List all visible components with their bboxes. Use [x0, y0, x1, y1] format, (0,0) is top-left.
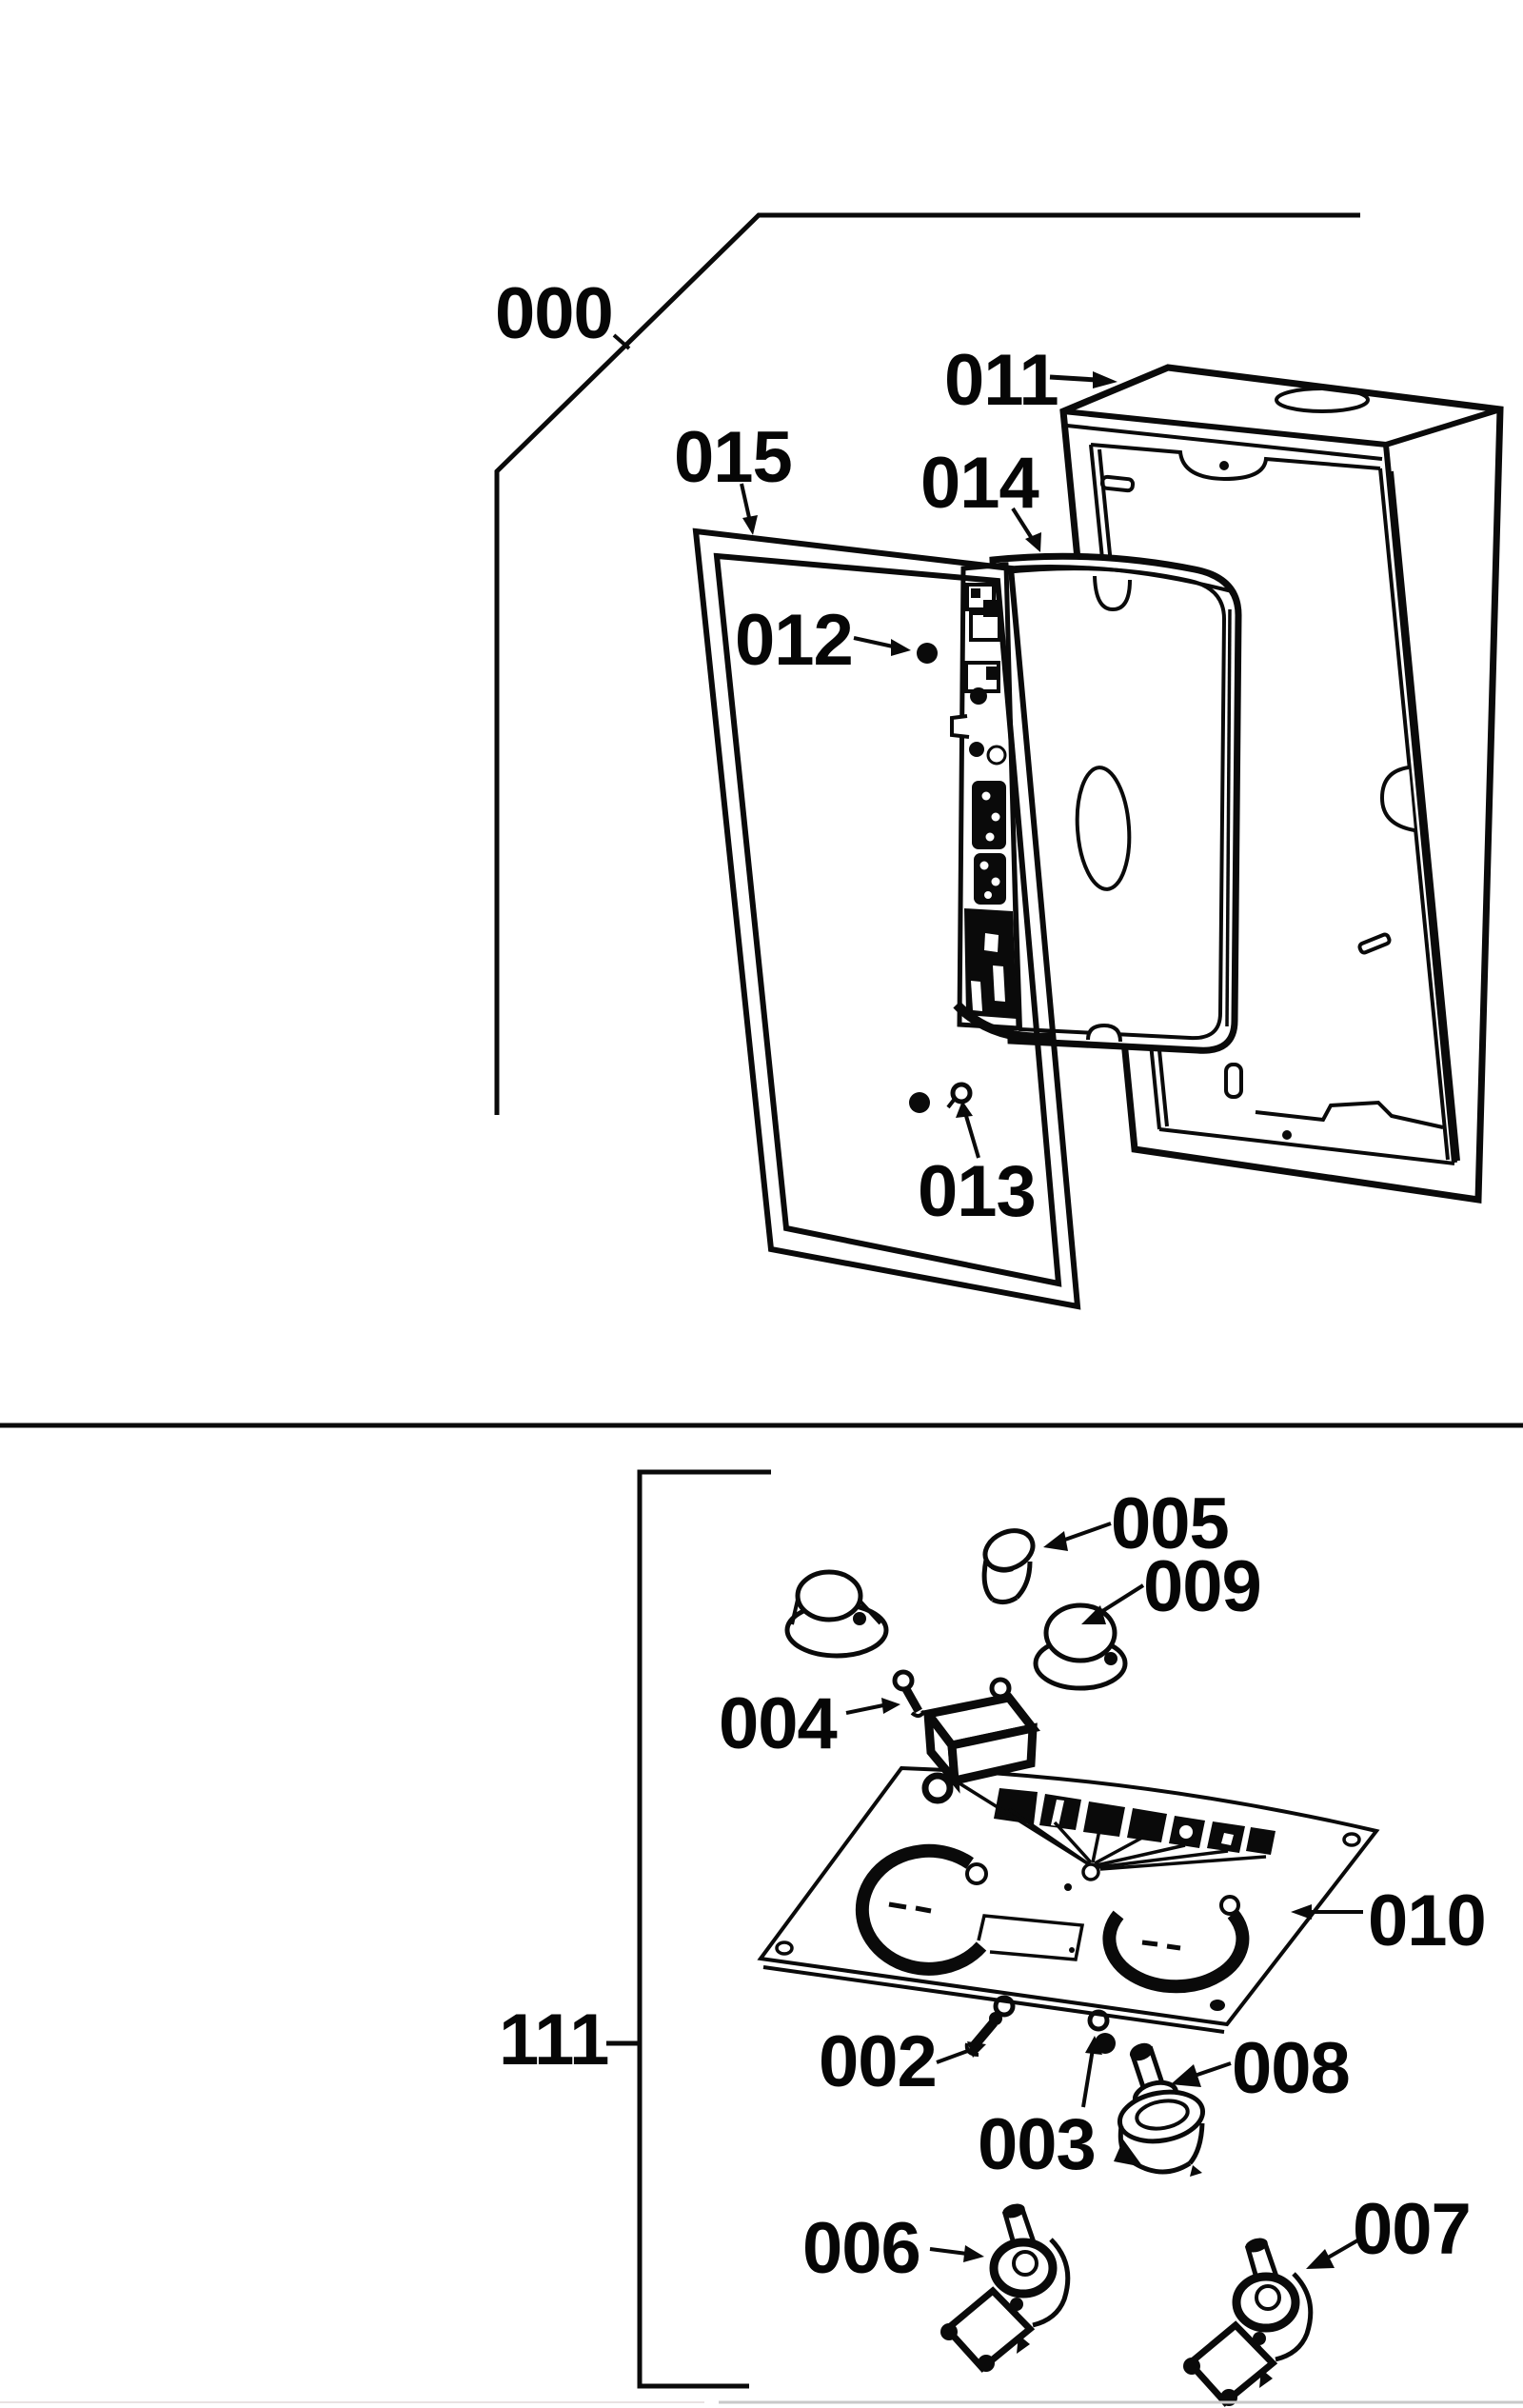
svg-text:004: 004: [719, 1683, 838, 1764]
svg-text:007: 007: [1353, 2189, 1471, 2270]
svg-text:000: 000: [495, 273, 613, 354]
svg-text:014: 014: [920, 443, 1039, 524]
svg-text:003: 003: [978, 2104, 1096, 2185]
svg-text:013: 013: [918, 1151, 1036, 1232]
svg-text:015: 015: [674, 417, 792, 498]
svg-text:008: 008: [1232, 2028, 1350, 2109]
svg-text:006: 006: [802, 2208, 920, 2289]
svg-text:009: 009: [1143, 1546, 1261, 1627]
svg-text:010: 010: [1368, 1881, 1486, 1961]
svg-text:002: 002: [819, 2021, 937, 2102]
svg-text:011: 011: [944, 340, 1058, 421]
svg-text:111: 111: [499, 2000, 608, 2080]
svg-text:012: 012: [735, 600, 853, 681]
